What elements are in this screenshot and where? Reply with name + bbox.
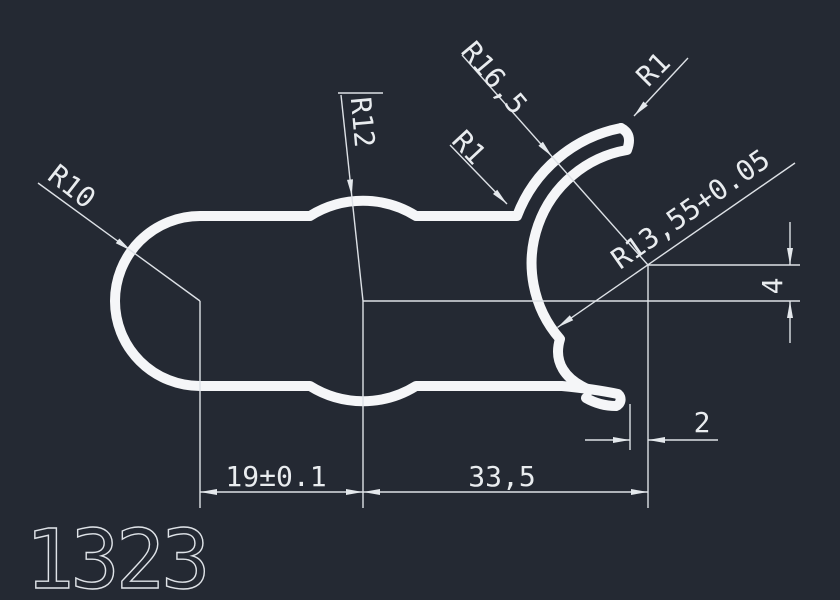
dim-19-arrow-right (346, 489, 363, 495)
annotation-texts: R10 R12 R16,5 R1 R1 R13,55+0.05 19±0.1 3… (42, 35, 789, 493)
dim-2-arrow-right (648, 437, 665, 443)
cad-viewport: R10 R12 R16,5 R1 R1 R13,55+0.05 19±0.1 3… (0, 0, 840, 600)
dim-33-5-text: 33,5 (468, 460, 535, 493)
dim-2-arrow-left (613, 437, 630, 443)
part-number: 1323 (25, 513, 206, 600)
profile-geometry (115, 128, 629, 406)
r1-left-arrowhead (493, 190, 507, 204)
dimension-arrows (116, 102, 793, 496)
r1-left-label: R1 (445, 124, 492, 171)
dim-4-text: 4 (756, 278, 789, 295)
dim-19-text: 19±0.1 (225, 460, 326, 493)
r13-55-label: R13,55+0.05 (605, 143, 776, 276)
r16-5-label: R16,5 (455, 35, 534, 121)
dim-2-text: 2 (694, 406, 711, 439)
r16-5-arrowhead (538, 142, 552, 157)
dim-4-arrow-top (787, 248, 793, 265)
r12-label: R12 (344, 96, 381, 149)
dimension-lines (38, 55, 800, 508)
dim-33-5-arrow-right (631, 489, 648, 495)
dim-4-arrow-bottom (787, 301, 793, 318)
r1-top-arrowhead (634, 102, 648, 117)
r13-55-arrowhead (558, 315, 574, 327)
r13-55-leader-line (558, 163, 796, 327)
r10-arrowhead (116, 239, 132, 251)
cad-drawing-canvas: R10 R12 R16,5 R1 R1 R13,55+0.05 19±0.1 3… (0, 0, 840, 600)
profile-outline (115, 128, 621, 406)
dim-19-arrow-left (200, 489, 217, 495)
dim-33-5-arrow-left (363, 489, 380, 495)
r1-top-label: R1 (630, 46, 677, 93)
r10-label: R10 (42, 158, 102, 215)
